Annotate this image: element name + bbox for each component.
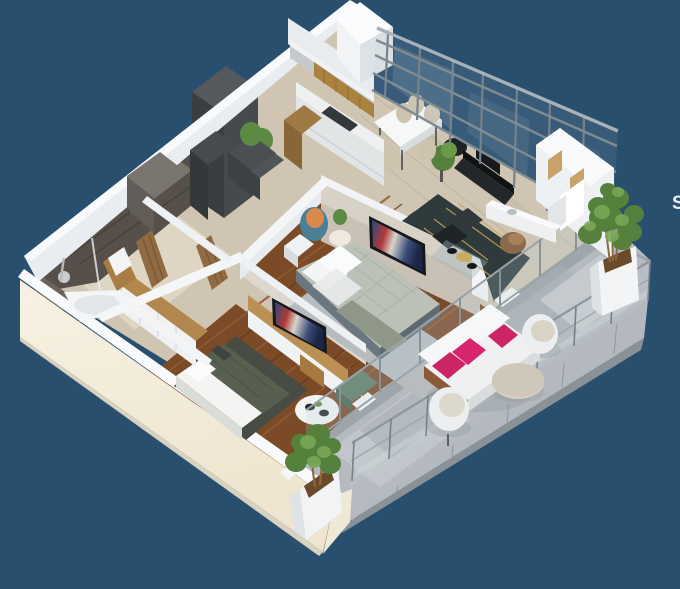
svg-text:S: S [672,193,680,214]
